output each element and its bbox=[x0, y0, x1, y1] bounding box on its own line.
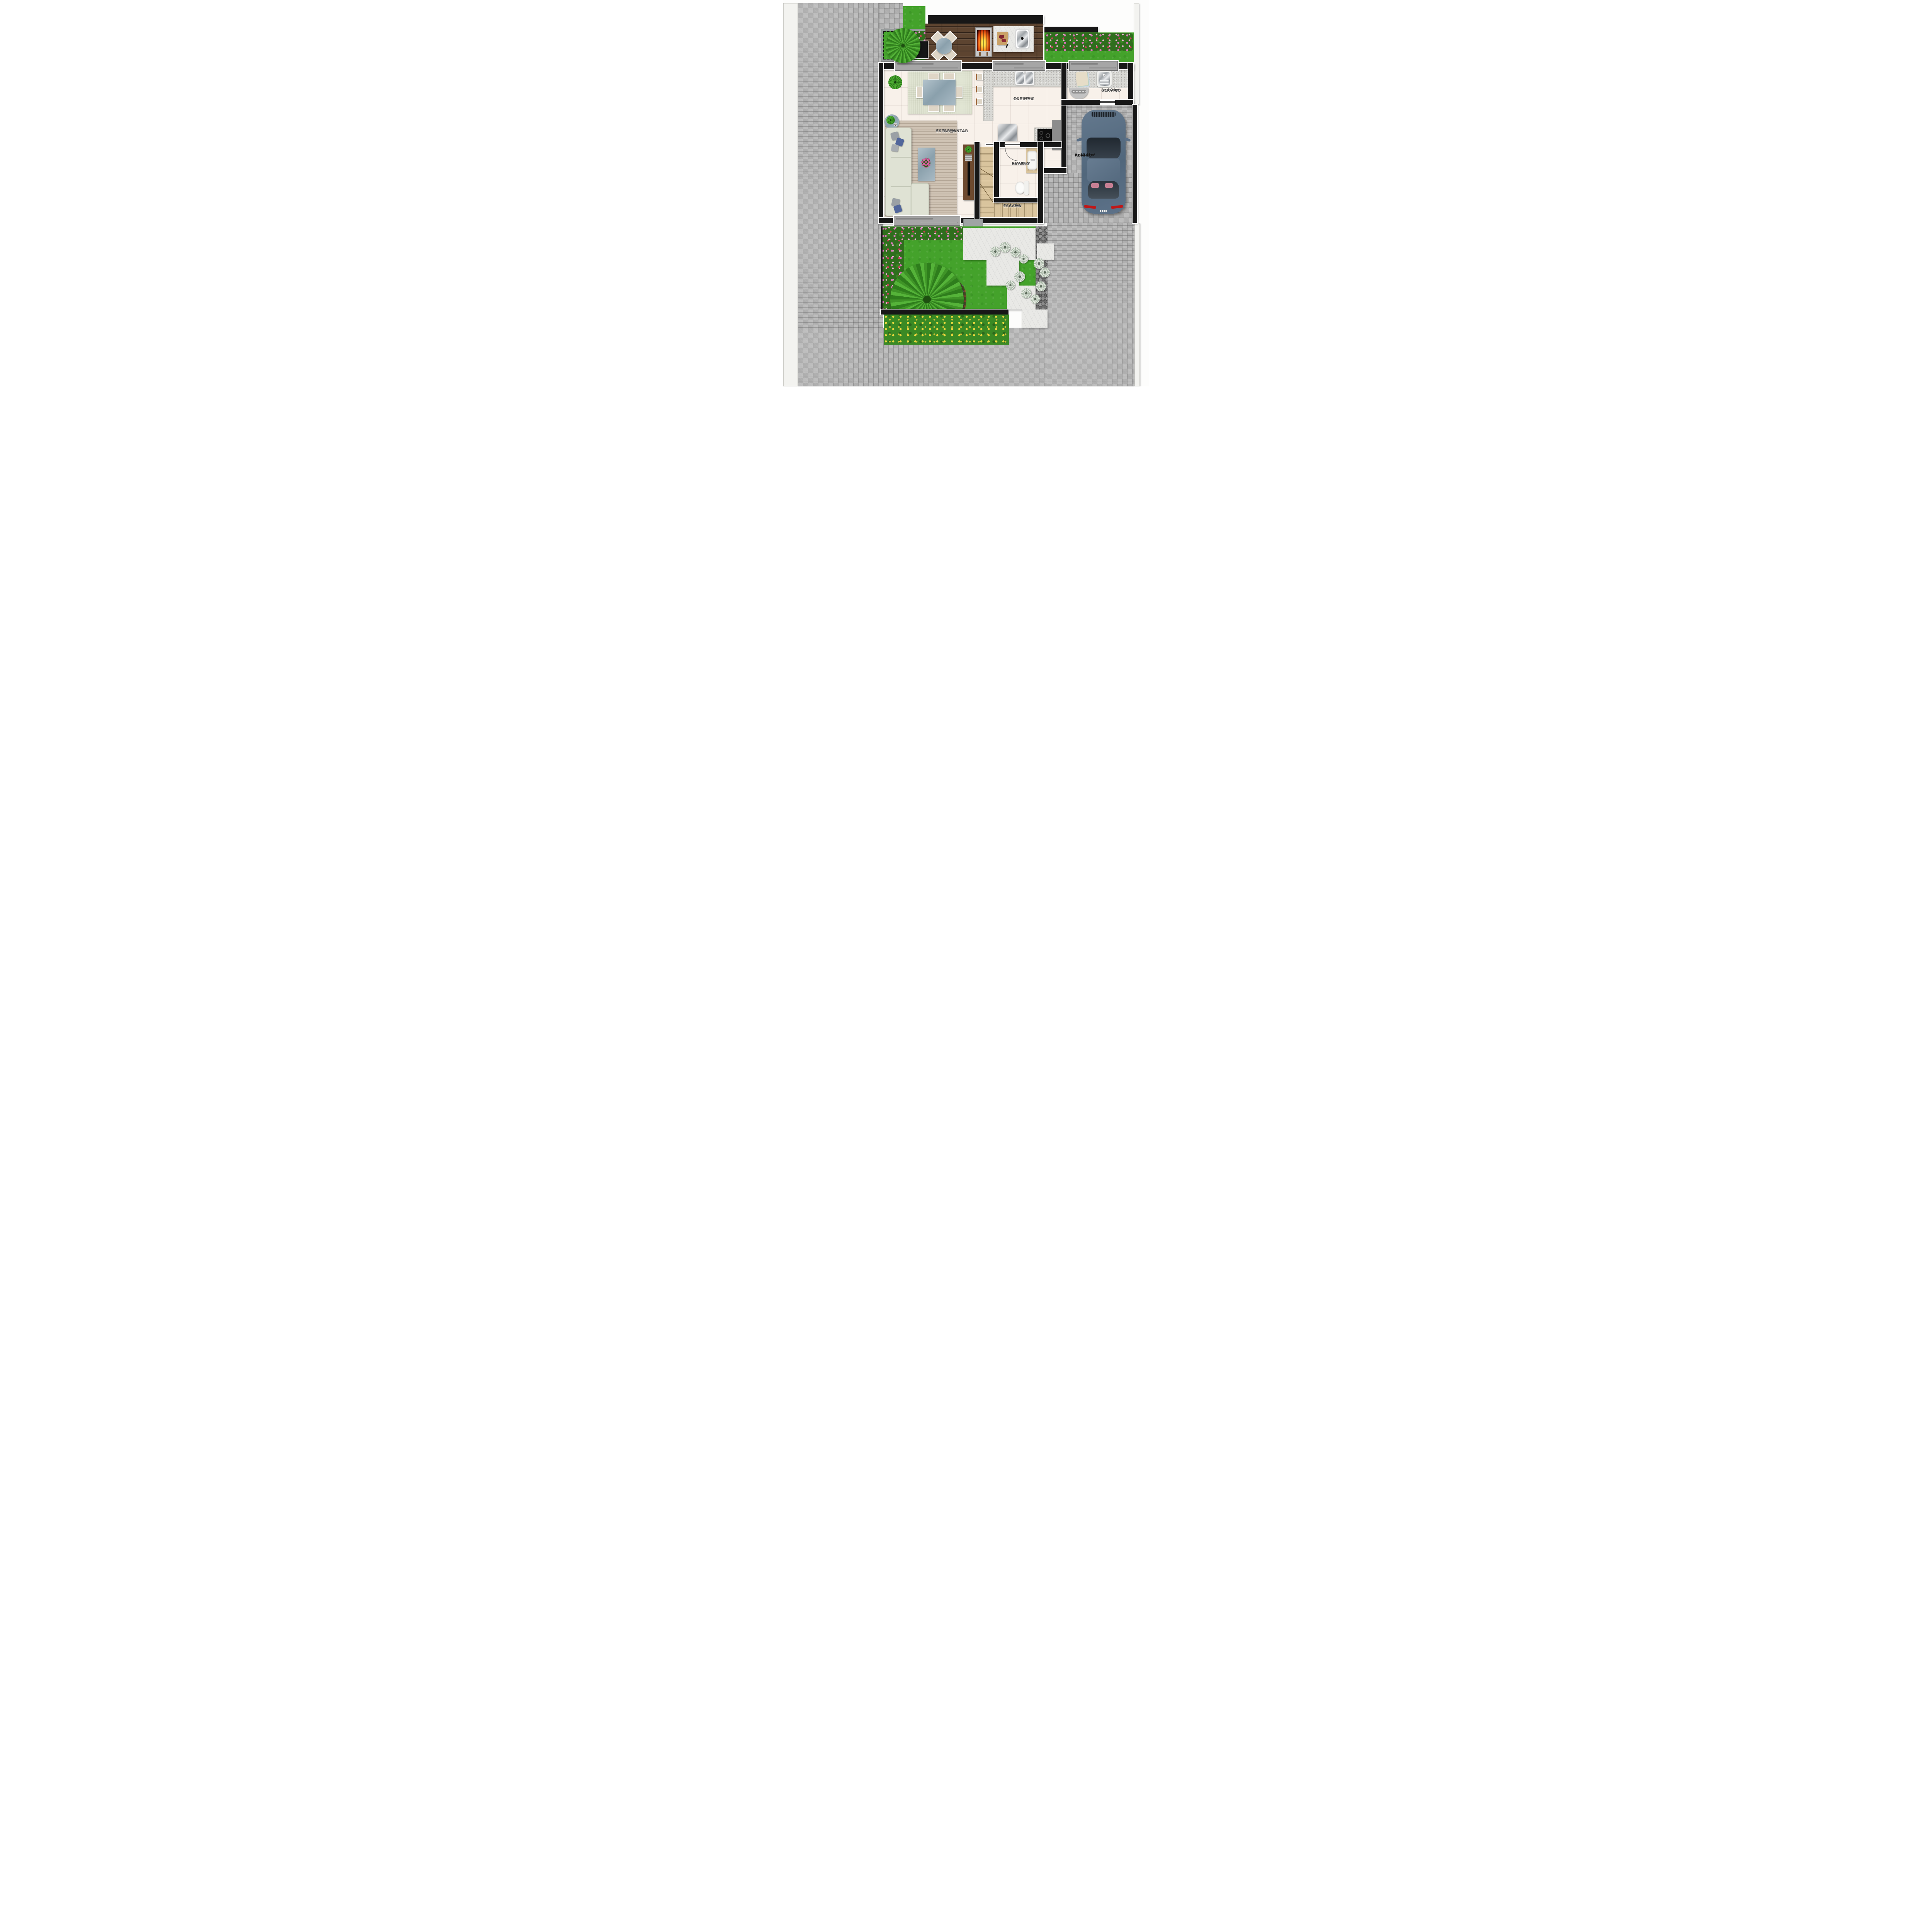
wall-lavabo-left bbox=[994, 142, 999, 202]
service-door-leaf bbox=[1100, 101, 1115, 103]
laundry-tub bbox=[1097, 70, 1112, 87]
side-table-plant bbox=[886, 116, 895, 124]
wall-living-stairs bbox=[975, 142, 980, 223]
toilet bbox=[1015, 180, 1029, 196]
car-taillight bbox=[1083, 205, 1096, 209]
deck-sink bbox=[1015, 29, 1030, 49]
boundary-wall-right-top bbox=[1134, 3, 1139, 105]
room-area: A= 2,40m² bbox=[1012, 162, 1030, 165]
car-sunroof-grid bbox=[1092, 112, 1116, 117]
garden-exit-threshold bbox=[963, 219, 983, 227]
car-rear-seats bbox=[1091, 183, 1099, 188]
room-area: A= 13,29m² bbox=[1075, 153, 1095, 157]
bar-stool bbox=[976, 86, 983, 93]
car-taillight bbox=[1111, 205, 1123, 209]
dining-chair bbox=[928, 73, 939, 80]
television bbox=[968, 162, 970, 196]
refrigerator bbox=[998, 124, 1017, 141]
agave-plant bbox=[1000, 242, 1010, 253]
pillow-gray bbox=[891, 144, 898, 152]
sofa-chaise bbox=[911, 183, 929, 216]
palm-tree-planter bbox=[886, 28, 920, 63]
room-area: A= 10,49m² bbox=[1014, 97, 1034, 100]
car-badge bbox=[1100, 210, 1107, 212]
sliding-door-garden bbox=[894, 216, 960, 226]
stairs-hall bbox=[980, 147, 994, 218]
flower-hedge-top-lawn bbox=[1045, 33, 1133, 51]
barbecue-fire bbox=[977, 30, 990, 51]
deck-sink-drain bbox=[1021, 37, 1024, 40]
washer-control-panel bbox=[1071, 90, 1086, 94]
dining-chair bbox=[943, 73, 955, 80]
wall-service-right bbox=[1128, 63, 1133, 105]
stepping-stone-cross bbox=[1037, 243, 1054, 260]
stepping-stone bbox=[986, 260, 1019, 286]
barbecue-handle bbox=[986, 52, 988, 56]
sofa-cushion-line bbox=[891, 157, 912, 158]
bar-stool bbox=[976, 98, 983, 105]
lavabo-faucet bbox=[1031, 159, 1035, 161]
garden-fence-left bbox=[881, 226, 883, 310]
service-window bbox=[1069, 61, 1118, 71]
room-area: A= 3,24m² bbox=[1102, 88, 1120, 92]
tv-shelf-books bbox=[965, 155, 972, 161]
agave-plant bbox=[1034, 258, 1044, 269]
tv-panel-cabinet bbox=[963, 145, 974, 200]
folded-towels bbox=[1075, 71, 1088, 87]
pavement-left bbox=[798, 3, 883, 328]
garden-fence-bottom bbox=[881, 310, 1009, 315]
burner-center bbox=[1046, 133, 1050, 138]
flower-centerpiece bbox=[921, 158, 931, 168]
kitchen-pass-door-leaf bbox=[986, 144, 993, 145]
barbecue-handle bbox=[979, 52, 981, 56]
car-rear-window bbox=[1088, 181, 1119, 199]
sink-bowl-right bbox=[1026, 72, 1033, 84]
deck-counter bbox=[993, 26, 1034, 52]
barbecue-grill bbox=[975, 27, 992, 57]
floor-plan: ESTAR/JANTAR A= 20,19m² COZINHA A= 10,49… bbox=[783, 0, 1149, 386]
boundary-wall-left bbox=[783, 3, 798, 386]
kitchen-double-sink bbox=[1015, 71, 1034, 85]
kitchen-counter-left bbox=[983, 69, 993, 121]
laundry-tub-drain bbox=[1103, 74, 1105, 77]
dining-chair bbox=[956, 87, 963, 98]
agave-plant bbox=[1010, 247, 1020, 257]
wall-stairs-right bbox=[1038, 142, 1043, 223]
car-roof bbox=[1087, 158, 1120, 182]
burner bbox=[1039, 136, 1043, 140]
pavement-top-corner bbox=[879, 3, 903, 29]
meat-on-board bbox=[999, 35, 1004, 39]
laundry-tub-ridges bbox=[1100, 80, 1109, 85]
agave-plant bbox=[990, 247, 1000, 257]
agave-plant bbox=[1031, 294, 1040, 304]
garden-hedge-top bbox=[884, 226, 963, 240]
meat-on-board bbox=[1002, 39, 1006, 42]
agave-plant bbox=[1014, 271, 1025, 282]
wall-kitchen-lavabo bbox=[994, 142, 1061, 147]
kitchen-window bbox=[993, 61, 1045, 71]
boundary-wall-right-bottom bbox=[1134, 223, 1140, 386]
lavabo-door-leaf bbox=[1005, 144, 1020, 145]
sink-bowl-left bbox=[1016, 72, 1024, 84]
toilet-bowl bbox=[1015, 182, 1025, 194]
agave-plant bbox=[1021, 288, 1031, 298]
agave-plant bbox=[1019, 254, 1028, 264]
lavabo-basin bbox=[1027, 151, 1037, 170]
wall-kitchen-right bbox=[1061, 63, 1066, 173]
agave-plant bbox=[1040, 267, 1050, 277]
coffee-cup bbox=[894, 123, 897, 126]
potted-plant bbox=[888, 75, 902, 89]
agave-plant bbox=[1036, 281, 1046, 291]
dining-table bbox=[923, 80, 956, 105]
wall-lavabo-bottom bbox=[994, 198, 1038, 202]
wall-service-bottom bbox=[1061, 100, 1133, 105]
car bbox=[1082, 110, 1126, 214]
burner bbox=[1039, 131, 1043, 135]
dining-chair bbox=[943, 105, 955, 112]
room-area: A= 4,26m² bbox=[1003, 204, 1022, 207]
yellow-flower-bed bbox=[884, 315, 1009, 345]
wall-left bbox=[879, 63, 883, 223]
toilet-tank bbox=[1024, 181, 1029, 195]
tv-shelf-plant bbox=[965, 146, 972, 153]
car-rear-seats bbox=[1105, 183, 1113, 188]
agave-plant bbox=[1006, 281, 1015, 290]
bar-stool bbox=[976, 73, 983, 80]
wall-carport-right bbox=[1133, 105, 1137, 223]
sofa-cushion-line bbox=[891, 186, 912, 187]
wall-band-above-lawn bbox=[1044, 27, 1098, 32]
wall-top-band bbox=[928, 15, 1043, 24]
dining-chair bbox=[928, 105, 939, 112]
cutting-board bbox=[997, 32, 1008, 45]
stepping-stone bbox=[1022, 310, 1048, 328]
dining-chair bbox=[916, 87, 923, 98]
driveway-lower bbox=[1047, 223, 1134, 386]
deck-round-glass-table bbox=[936, 38, 952, 54]
room-area: A= 20,19m² bbox=[936, 129, 957, 133]
